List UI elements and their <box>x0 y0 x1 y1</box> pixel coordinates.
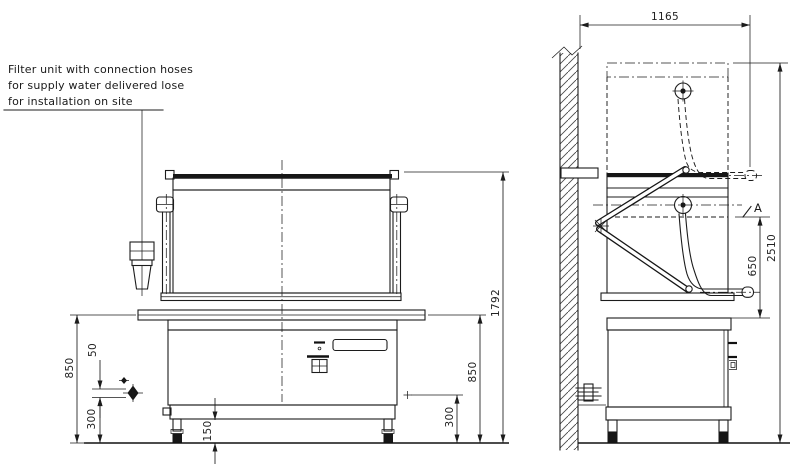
note-line-3: for installation on site <box>8 95 133 108</box>
note-line-2: for supply water delivered lose <box>8 79 184 92</box>
foot-side-left <box>608 432 618 443</box>
hood-top-band <box>173 178 390 190</box>
wall-mount-bracket <box>561 168 598 178</box>
body-top-band <box>168 320 397 330</box>
dim-50: 50 <box>87 343 99 357</box>
body-base-band <box>170 405 395 419</box>
section-mark: A <box>743 201 762 217</box>
front-dimensions: 850 50 300 150 300 850 1792 <box>64 172 509 464</box>
lift-lever-mechanism <box>561 167 692 292</box>
dim-300-right: 300 <box>444 407 456 428</box>
foot-side-right <box>719 432 729 443</box>
body-panel <box>168 330 397 405</box>
hood-raised-phantom <box>607 63 764 217</box>
foot-right <box>384 434 394 443</box>
wall-pivot-star-icon <box>593 218 609 234</box>
display-window <box>333 340 387 351</box>
foot-left <box>173 434 183 443</box>
dim-2510: 2510 <box>766 234 778 262</box>
note-line-1: Filter unit with connection hoses <box>8 63 193 76</box>
dim-150: 150 <box>202 421 214 442</box>
dim-650: 650 <box>747 256 759 277</box>
wall-pipe-fitting <box>576 384 601 401</box>
side-view: 1165 2510 650 A <box>552 11 790 450</box>
hood-rim-side <box>601 293 734 301</box>
control-panel <box>307 340 387 373</box>
dim-1165: 1165 <box>651 11 679 23</box>
filter-unit <box>130 242 154 296</box>
drawing-canvas: Filter unit with connection hoses for su… <box>0 0 794 476</box>
dim-1792: 1792 <box>490 289 502 317</box>
body-panel-side <box>608 330 728 407</box>
machine-body-side <box>576 318 737 443</box>
base-band-side <box>606 407 731 420</box>
section-mark-label: A <box>754 201 762 215</box>
dim-850-left: 850 <box>64 358 76 379</box>
table-rails <box>138 310 425 320</box>
handle-lowered <box>679 214 743 289</box>
indicator-dot <box>318 347 321 350</box>
leg-side-left <box>608 420 617 432</box>
side-dimensions: 1165 2510 650 A <box>580 11 788 443</box>
table-band-side <box>607 318 731 330</box>
dim-300-left: 300 <box>86 409 98 430</box>
dim-850-right: 850 <box>467 362 479 383</box>
installation-note: Filter unit with connection hoses for su… <box>4 63 193 242</box>
leg-side-right <box>719 420 728 432</box>
connection-point-right <box>404 391 464 399</box>
hood-handle-bar <box>173 174 392 178</box>
front-view: Filter unit with connection hoses for su… <box>4 63 509 464</box>
legs-side <box>608 420 729 443</box>
technical-drawing-dishwasher: Filter unit with connection hoses for su… <box>0 0 794 476</box>
hood-body <box>173 190 390 293</box>
wall <box>552 46 582 450</box>
machine-body-front <box>163 320 397 443</box>
